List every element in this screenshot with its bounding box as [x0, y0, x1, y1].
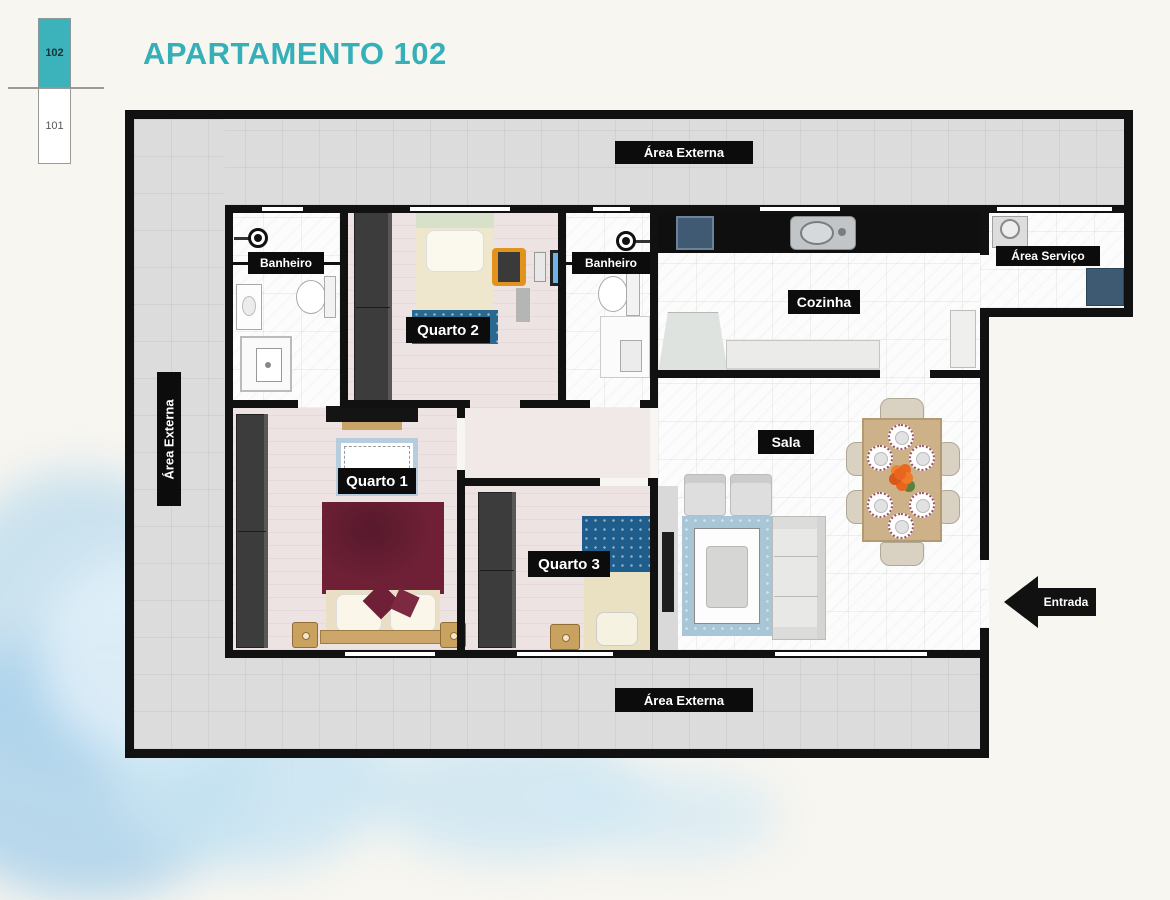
wall-kitchen-bottom-b [930, 370, 988, 378]
label-cozinha: Cozinha [788, 290, 860, 314]
page-title: APARTAMENTO 102 [143, 36, 447, 72]
label-area-externa-top: Área Externa [615, 141, 753, 164]
label-area-externa-left: Área Externa [157, 372, 181, 506]
label-quarto-2: Quarto 2 [406, 317, 490, 343]
wall-kitchen-bottom-a [658, 370, 880, 378]
bed3-pillow [596, 612, 638, 646]
bath2-toilet-bowl [598, 276, 628, 312]
armchair-right [730, 474, 772, 516]
wall-bed1-right-b [457, 470, 465, 650]
bed1-blanket [322, 502, 444, 594]
sofa-cushion-line-1 [774, 556, 818, 557]
label-banheiro-1: Banheiro [248, 252, 324, 274]
right-wall-below-entrance [980, 628, 989, 758]
bed1-nightstand-left [292, 622, 318, 648]
wall-mid-a [225, 400, 298, 408]
step-wall [989, 308, 1133, 317]
window-bath1 [262, 205, 303, 213]
wall-bed2-bath2 [558, 205, 566, 408]
coffee-table [706, 546, 748, 608]
label-quarto-1: Quarto 1 [338, 468, 416, 494]
entrance-arrow-label: Entrada [1036, 588, 1096, 616]
bath2-toilet-tank [626, 272, 640, 316]
window-bed2 [410, 205, 510, 213]
inner-wall-top [225, 205, 1124, 213]
label-quarto-3: Quarto 3 [528, 551, 610, 577]
kitchen-appliance [658, 312, 728, 374]
label-area-servico: Área Serviço [996, 246, 1100, 266]
outer-wall-left [125, 110, 134, 758]
dining-chair-bottom [880, 542, 924, 566]
label-banheiro-2: Banheiro [572, 252, 650, 274]
shower2-head-icon [616, 231, 636, 251]
kitchen-cooktop [676, 216, 714, 250]
bed3-nightstand [550, 624, 580, 650]
outer-wall-right-upper [1124, 110, 1133, 317]
label-sala: Sala [758, 430, 814, 454]
bath1-drain-dot [265, 362, 271, 368]
window-bath2 [593, 205, 630, 213]
living-tv [662, 532, 674, 612]
sofa [772, 516, 826, 640]
window-service [997, 205, 1112, 213]
bed2-speaker [534, 252, 546, 282]
wall-living-left [650, 478, 658, 658]
armchair-left [684, 474, 726, 516]
bed1-wardrobe [236, 414, 268, 648]
wall-mid-d [640, 400, 658, 408]
bed2-wardrobe [354, 212, 392, 402]
bed1-tv [326, 406, 418, 422]
plate-bottom [888, 513, 914, 539]
kitchen-faucet-dot [838, 228, 846, 236]
bed2-door-leaf [516, 288, 530, 322]
sofa-cushion-line-2 [774, 596, 818, 597]
entrance-arrow-icon [1004, 576, 1038, 628]
wall-bed3-top-b [648, 478, 658, 486]
plate-lower-right [909, 492, 935, 518]
window-bed1 [345, 650, 435, 658]
bath1-toilet-bowl [296, 280, 326, 314]
outer-wall-top [125, 110, 1133, 119]
outdoor-area-bottom [134, 658, 980, 749]
bed1-tv-shelf [342, 422, 402, 430]
bed3-wardrobe [478, 492, 516, 648]
wall-mid-b [340, 400, 470, 408]
window-living [775, 650, 927, 658]
bed1-footboard [320, 630, 446, 644]
unit-tab-101[interactable]: 101 [38, 88, 71, 164]
inner-wall-left [225, 205, 233, 658]
outer-wall-bottom [125, 749, 989, 758]
shower2-arm-icon [634, 240, 650, 243]
entrance-door-gap [980, 560, 989, 628]
plate-lower-left [867, 492, 893, 518]
dining-chair-right-2 [940, 490, 960, 524]
label-area-externa-bottom: Área Externa [615, 688, 753, 712]
window-bed3 [517, 650, 613, 658]
window-kitchen [760, 205, 840, 213]
plate-upper-left [867, 445, 893, 471]
kitchen-sink-basin [800, 221, 834, 245]
plate-top [888, 424, 914, 450]
right-wall-above-entrance [980, 308, 989, 560]
washing-machine-drum-icon [1000, 219, 1020, 239]
page: { "title": "APARTAMENTO 102", "unit_sele… [0, 0, 1170, 807]
unit-tab-102[interactable]: 102 [38, 18, 71, 88]
dining-chair-right-1 [940, 442, 960, 476]
shower-head-icon [248, 228, 268, 248]
wall-bed3-top-a [465, 478, 600, 486]
plate-upper-right [909, 445, 935, 471]
centerpiece-flower [894, 468, 906, 480]
kitchen-fridge [950, 310, 976, 368]
wall-kitchen-left [650, 205, 658, 408]
wall-mid-c [520, 400, 590, 408]
laundry-tank [1086, 268, 1124, 306]
bed2-pillow [426, 230, 484, 272]
bath2-sink-bowl [620, 340, 642, 372]
bath1-sink-bowl [242, 296, 256, 316]
bath1-toilet-tank [324, 276, 336, 318]
bed2-desk-chair-seat [498, 252, 520, 282]
wall-bed1-right-a [457, 408, 465, 418]
hallway-floor [465, 408, 650, 478]
wall-bath1-bed2 [340, 205, 348, 408]
wall-kitchen-service-stub [980, 205, 989, 255]
